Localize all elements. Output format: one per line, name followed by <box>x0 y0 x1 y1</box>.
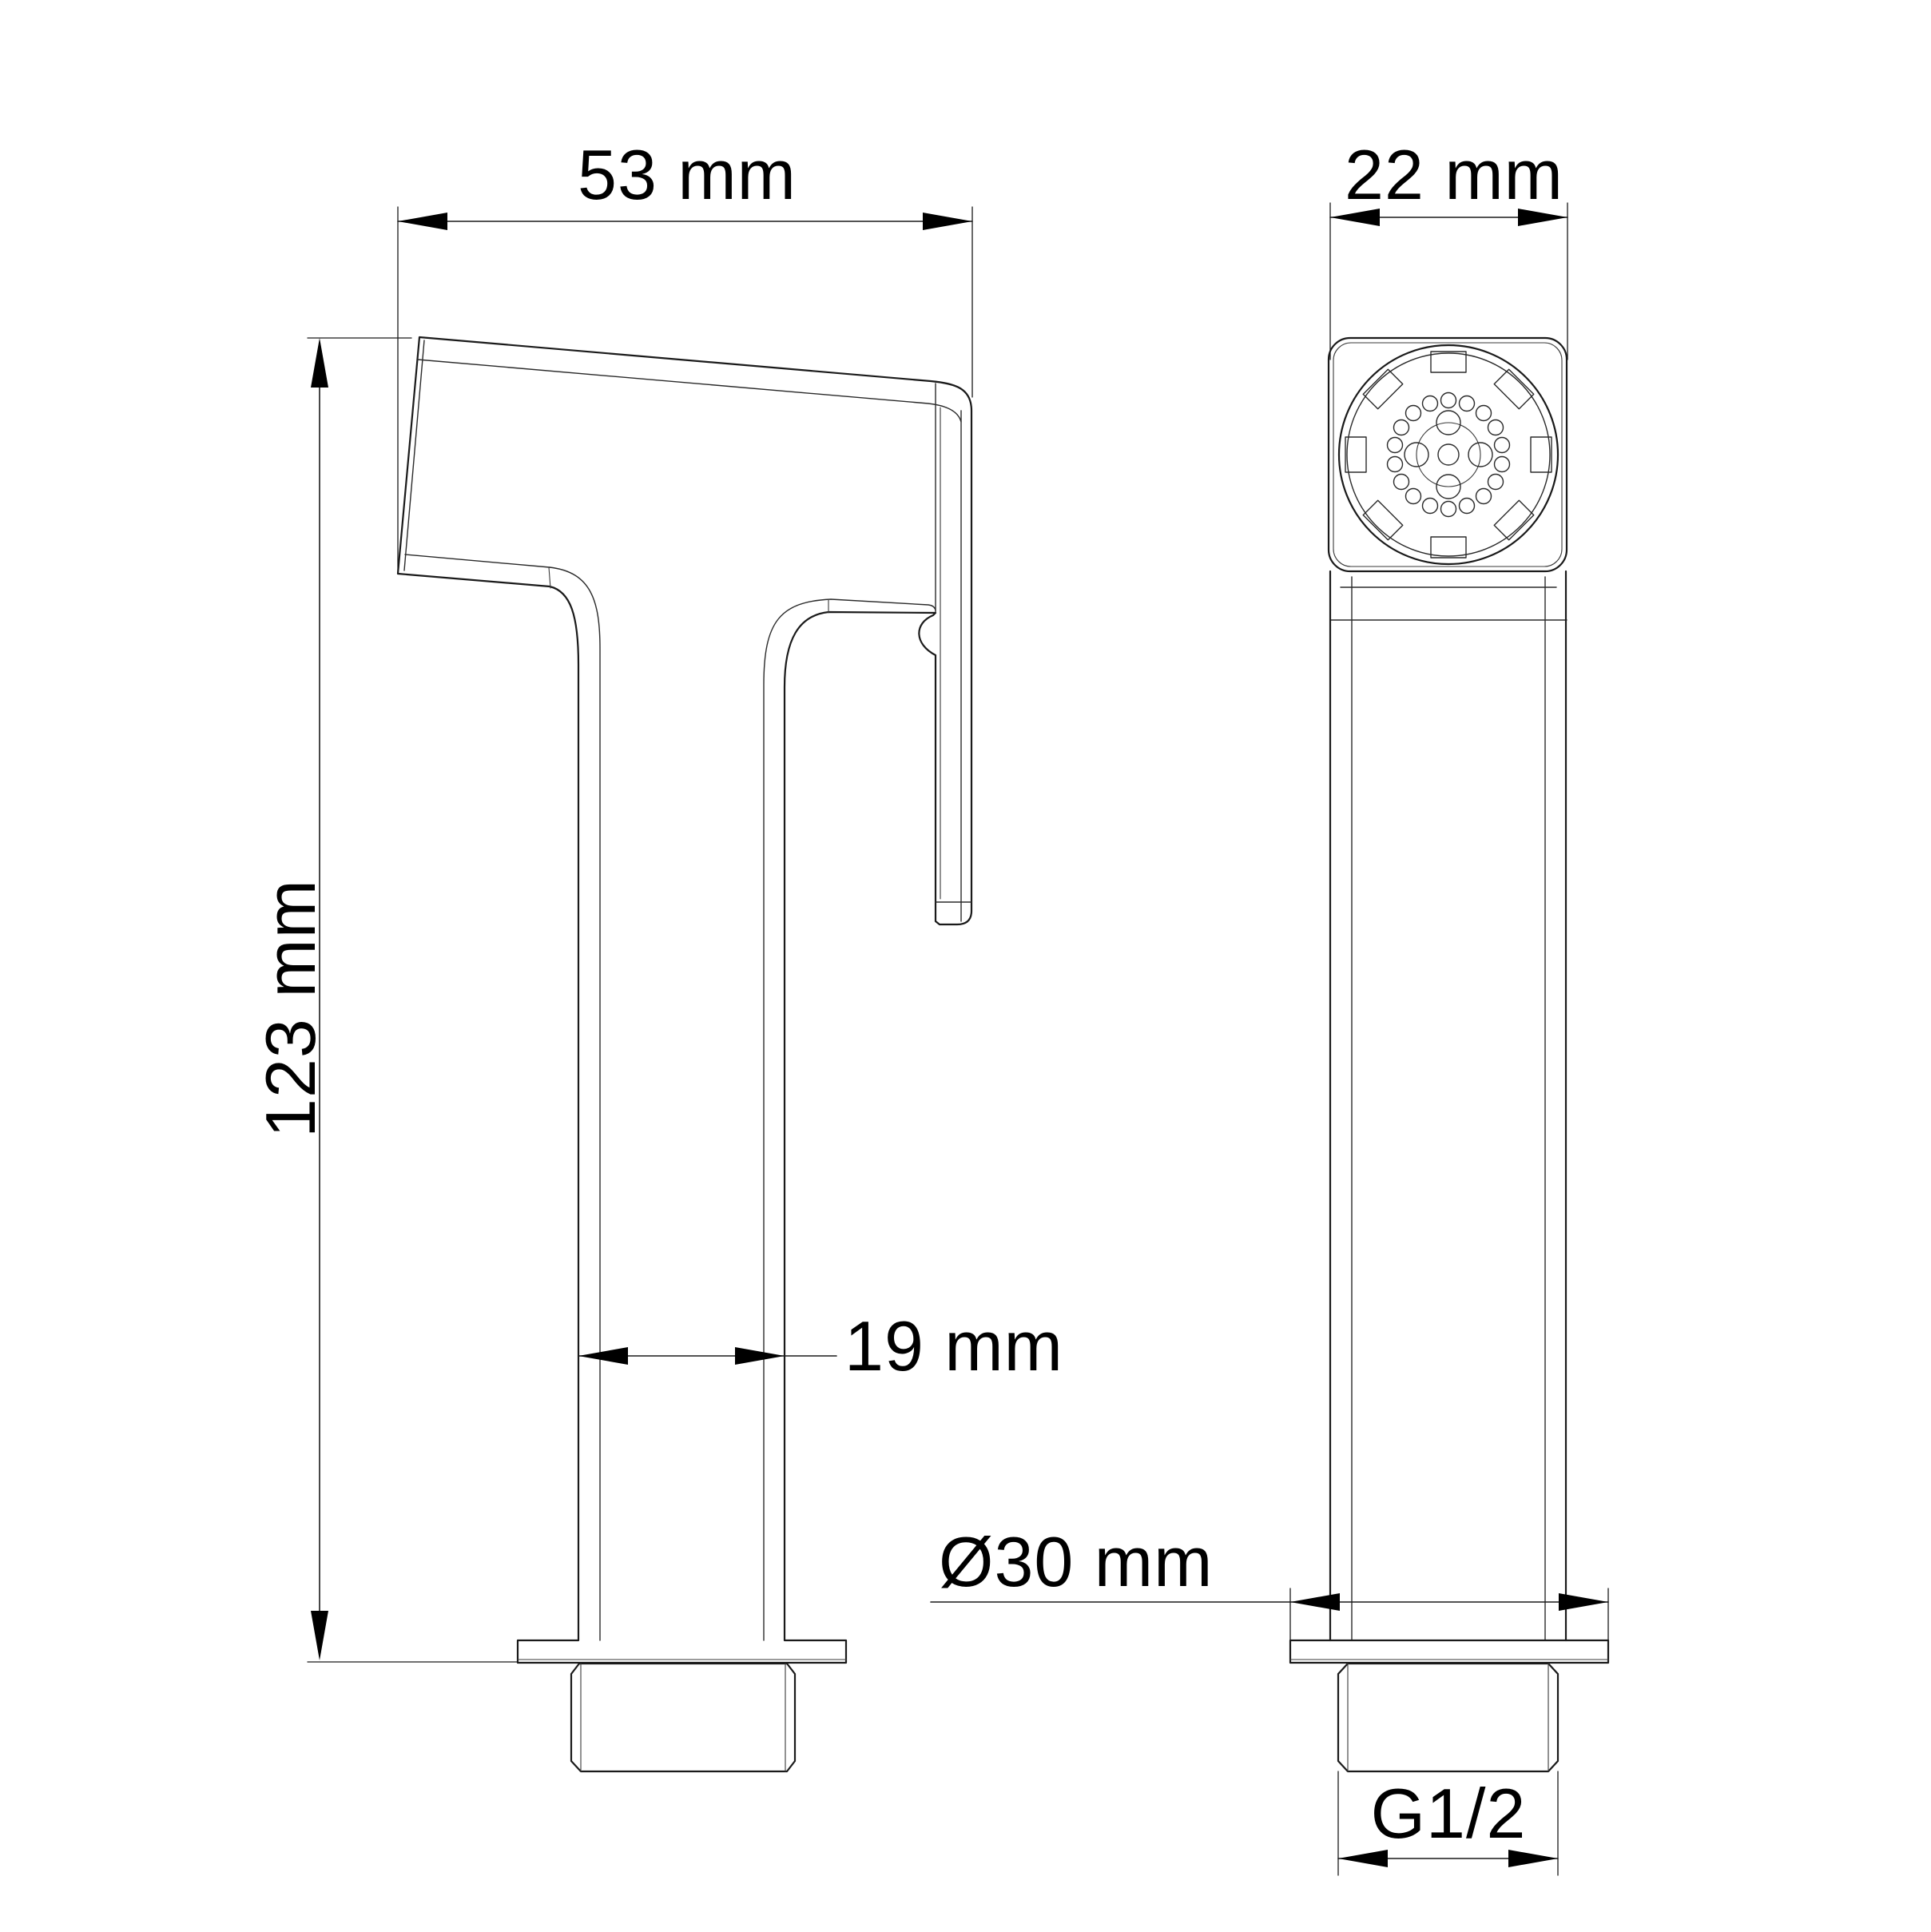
drawing-canvas: 53 mm 22 mm 123 mm 19 mm Ø30 mm <box>0 0 1931 1932</box>
dim-flange-diameter-label: Ø30 mm <box>939 1522 1213 1601</box>
nozzle-hole <box>1495 438 1510 453</box>
arrowhead-left <box>1290 1593 1340 1611</box>
spray-face-outer-circle <box>1339 345 1558 564</box>
nozzle-hole <box>1394 475 1409 490</box>
nozzle-hole <box>1476 406 1492 421</box>
nozzle-hole <box>1423 499 1438 514</box>
dimension-123mm: 123 mm <box>251 338 518 1662</box>
nozzle-hole <box>1423 396 1438 411</box>
arrowhead-left <box>398 213 447 230</box>
arrowhead-right <box>735 1347 785 1365</box>
head-bottom-tick <box>549 567 550 588</box>
dimension-30mm: Ø30 mm <box>931 1522 1608 1640</box>
nozzle-hole <box>1388 457 1403 472</box>
handle-left-inner-line <box>550 567 600 1640</box>
arrowhead-right <box>1559 1593 1608 1611</box>
dim-head-length-label: 53 mm <box>578 135 797 214</box>
nozzle-hole <box>1388 438 1403 453</box>
head-bottom-edge-line <box>405 555 550 567</box>
inner-ring-circle <box>1416 423 1480 487</box>
side-view-outline <box>398 337 971 1663</box>
arrowhead-right <box>923 213 972 230</box>
dim-head-width-label: 22 mm <box>1345 135 1563 214</box>
grip-notches <box>1345 352 1552 558</box>
nozzle-hole <box>1441 393 1456 408</box>
dimension-22mm: 22 mm <box>1330 135 1567 360</box>
notch-se <box>1494 500 1533 539</box>
head-top-edge-line <box>418 360 961 422</box>
center-nozzle <box>1438 444 1459 465</box>
dimension-19mm: 19 mm <box>578 1306 1063 1385</box>
nozzle-hole <box>1488 475 1504 490</box>
dimension-53mm: 53 mm <box>398 135 972 572</box>
nozzle-hole <box>1406 489 1421 504</box>
spray-face-rim-circle <box>1347 353 1550 556</box>
dim-thread-size-label: G1/2 <box>1371 1774 1527 1853</box>
arrowhead-top <box>311 338 328 388</box>
nozzle-hole <box>1488 420 1504 435</box>
front-head-square-inner <box>1333 343 1562 566</box>
notch-n <box>1431 352 1466 372</box>
notch-w <box>1345 437 1366 472</box>
dim-total-height-label: 123 mm <box>251 879 330 1138</box>
nozzle-ring <box>1388 393 1510 517</box>
nozzle-hole <box>1460 396 1475 411</box>
nozzle-hole <box>1460 499 1475 514</box>
nozzle-hole <box>1406 406 1421 421</box>
front-view <box>1290 338 1608 1771</box>
nozzle-hole <box>1394 420 1409 435</box>
front-thread <box>1338 1664 1558 1771</box>
notch-e <box>1531 437 1552 472</box>
spray-face <box>1339 345 1558 564</box>
arrowhead-left <box>578 1347 628 1365</box>
head-left-edge-line <box>404 340 424 570</box>
dimension-g12: G1/2 <box>1338 1771 1558 1875</box>
dim-handle-depth-label: 19 mm <box>844 1306 1063 1385</box>
nozzle-hole <box>1476 489 1492 504</box>
handle-right-inner-line <box>764 599 936 1640</box>
side-thread <box>571 1664 795 1771</box>
notch-sw <box>1363 500 1402 539</box>
nozzle-hole <box>1495 457 1510 472</box>
nozzle-hole <box>1441 502 1456 517</box>
notch-nw <box>1363 369 1402 408</box>
technical-drawing: 53 mm 22 mm 123 mm 19 mm Ø30 mm <box>0 0 1931 1932</box>
notch-s <box>1431 537 1466 558</box>
notch-ne <box>1494 369 1533 408</box>
side-view <box>398 337 971 1771</box>
arrowhead-bottom <box>311 1611 328 1660</box>
